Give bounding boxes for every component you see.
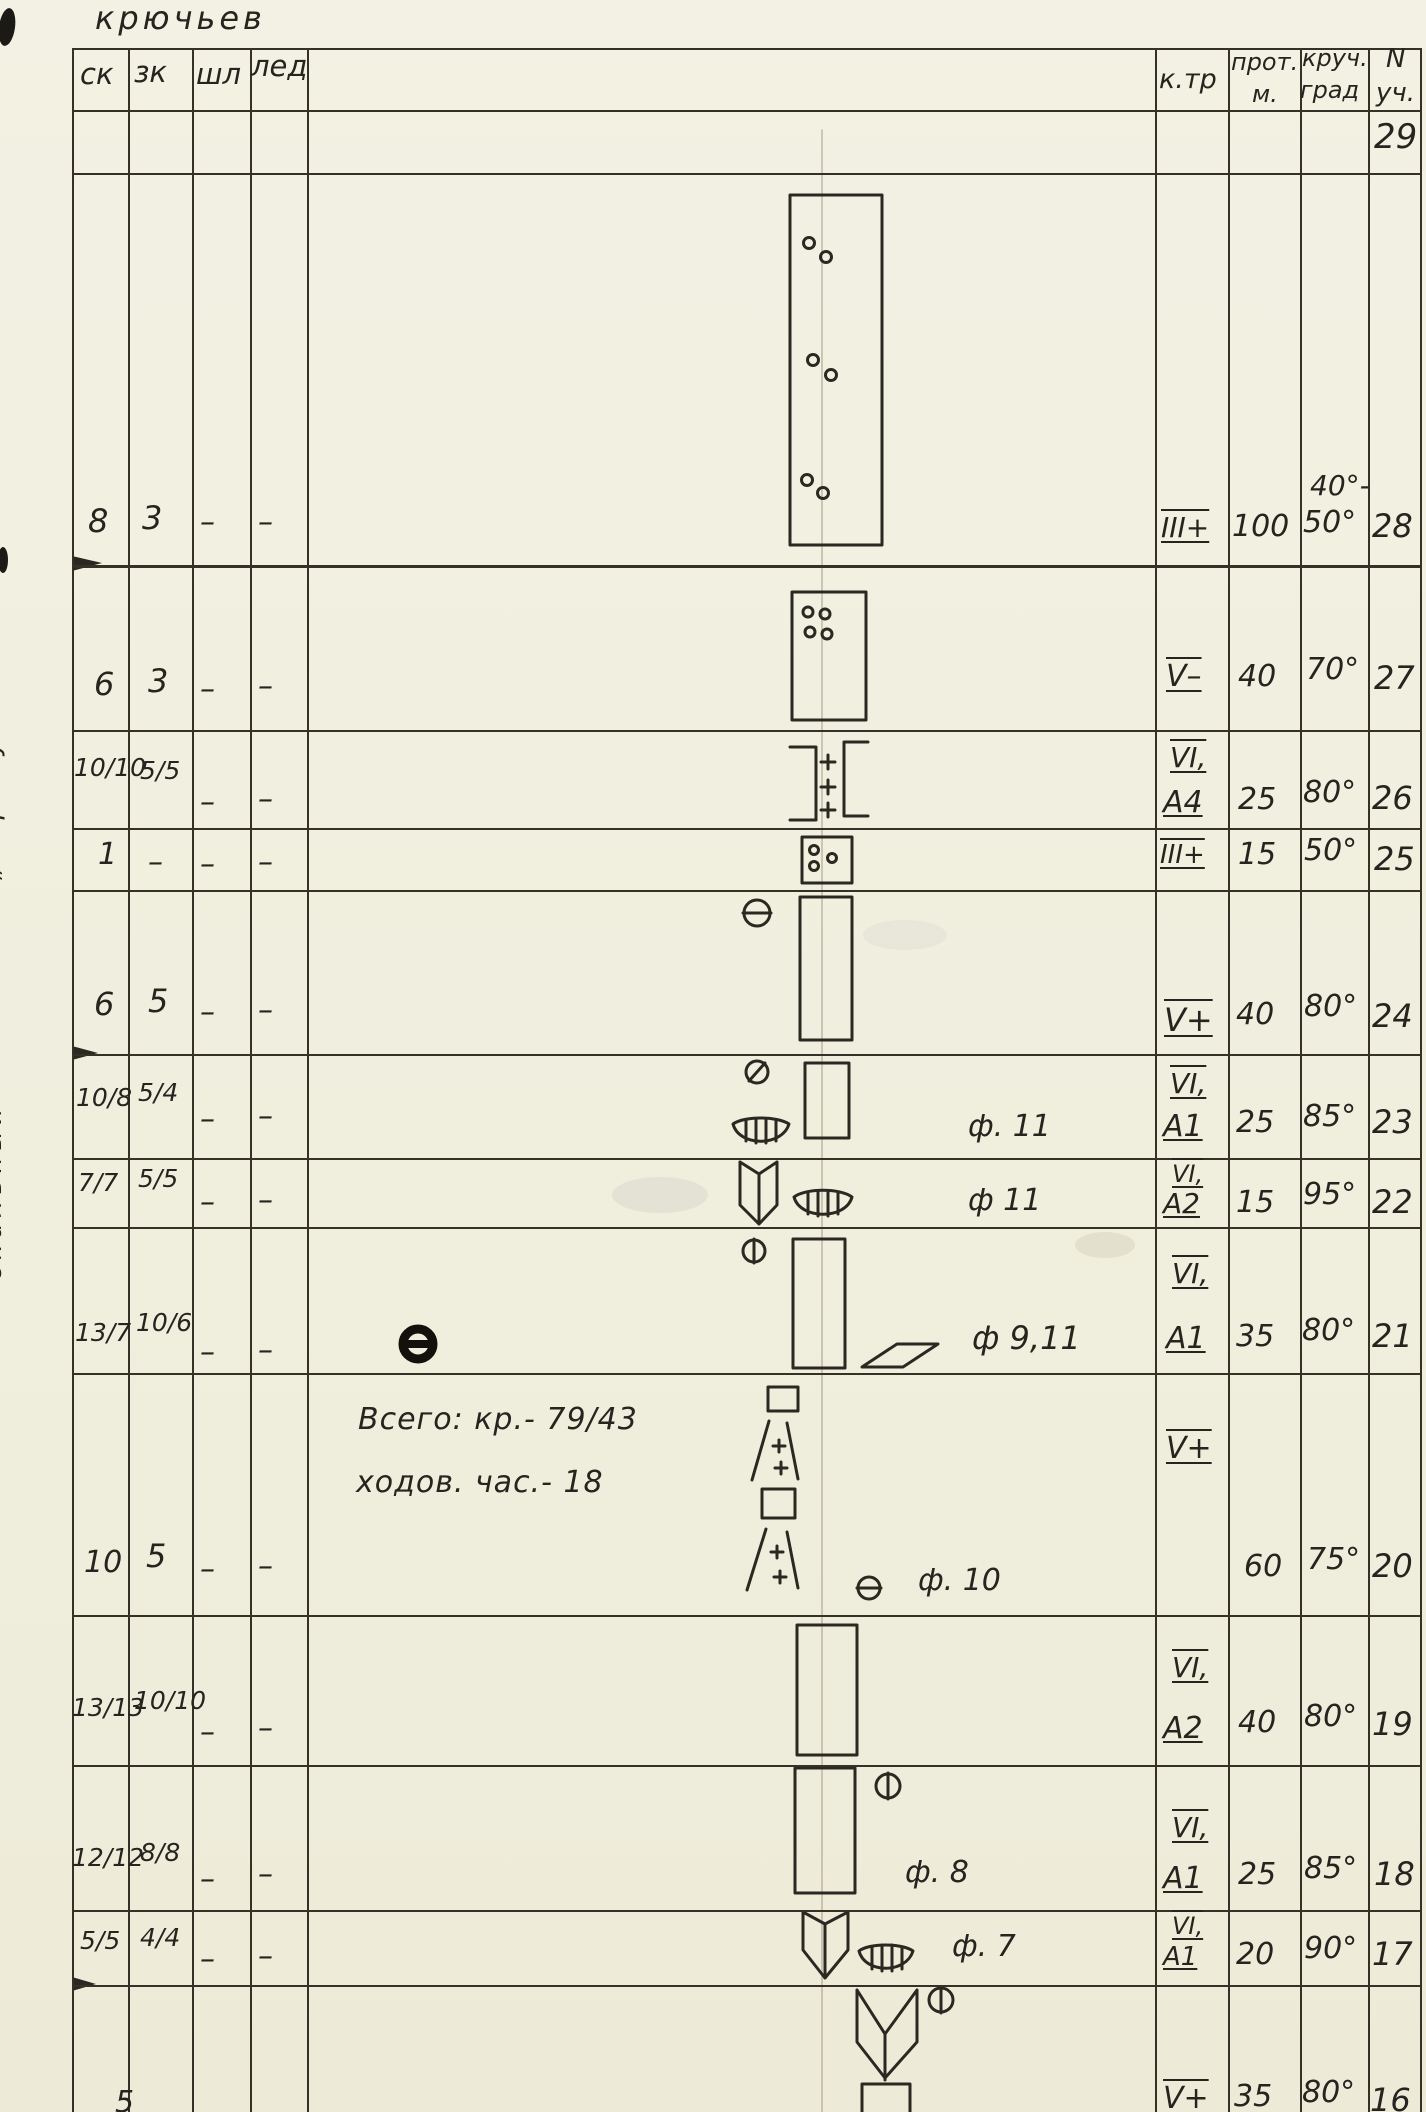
r28-length: 100 (1232, 512, 1289, 542)
route-topo-scan: крючьев ск зк шл лед к.тр прот. м. круч.… (0, 0, 1426, 2112)
drawing-r16-dihedral-icon (857, 1990, 917, 2112)
r18-photo-ref: ф. 8 (905, 1858, 969, 1888)
r27-led: – (258, 672, 273, 702)
grid-line-v (128, 48, 130, 2112)
r16-steepness: 80° (1302, 2078, 1355, 2108)
r20-steepness: 75° (1307, 1545, 1360, 1575)
drawing-r24-belay-circle-icon (743, 900, 771, 926)
col-header-prot-bot: м. (1252, 82, 1278, 106)
grid-line-h (72, 1910, 1420, 1912)
grid-line-h (72, 565, 1420, 568)
r23-aid-grade: А1 (1163, 1112, 1203, 1142)
r21-length: 35 (1236, 1322, 1274, 1352)
drawing-r22-overhang-icon (794, 1190, 852, 1216)
r21-n: 21 (1372, 1320, 1413, 1352)
drawing-r20-crack-pitons-icon (747, 1387, 798, 1590)
r21-grade: VI, (1172, 1260, 1208, 1288)
r19-n: 19 (1372, 1708, 1413, 1740)
col-header-n-top: N (1386, 46, 1405, 72)
col-header-prot-top: прот. (1231, 50, 1298, 74)
r17-zk: 4/4 (140, 1925, 180, 1950)
r20-length: 60 (1244, 1552, 1282, 1582)
drawing-r22-dihedral-icon (740, 1162, 777, 1224)
r20-sk: 10 (84, 1548, 122, 1578)
grid-line-v (307, 48, 309, 2112)
grid-line-v (1228, 48, 1230, 2112)
r25-sk: 1 (98, 840, 117, 870)
r26-zk: 5/5 (140, 758, 180, 783)
r27-grade: V– (1166, 662, 1202, 692)
r18-aid-grade: А1 (1163, 1864, 1203, 1894)
r21-sk: 13/7 (75, 1320, 131, 1345)
r21-led: – (258, 1336, 273, 1366)
drawing-r21-ledge-icon (862, 1344, 938, 1367)
r16-n: 16 (1370, 2084, 1411, 2112)
r19-length: 40 (1238, 1708, 1276, 1738)
r23-zk: 5/4 (138, 1080, 178, 1105)
r17-shl: – (200, 1945, 215, 1975)
drawing-r25-block-icon (802, 837, 852, 883)
r26-aid-grade: А4 (1163, 788, 1203, 818)
r26-grade: VI, (1170, 744, 1206, 772)
r25-led: – (258, 848, 273, 878)
r28-n: 28 (1372, 510, 1413, 542)
grid-line-h (72, 1227, 1420, 1229)
drawing-r18-circle-bar-icon (876, 1773, 900, 1799)
grid-line-v (72, 48, 74, 2112)
r23-n: 23 (1372, 1106, 1413, 1138)
r16-sk: 5 (115, 2088, 134, 2112)
r24-grade: V+ (1164, 1004, 1213, 1036)
r22-n: 22 (1372, 1186, 1413, 1218)
corner-note: крючьев (95, 2, 266, 34)
drawing-r24-wall-icon (800, 897, 852, 1040)
col-header-krut-top: круч. (1302, 46, 1368, 70)
r18-grade: VI, (1172, 1814, 1208, 1842)
r25-length: 15 (1238, 840, 1276, 870)
drawing-r23-overhang-icon (733, 1118, 789, 1143)
grid-line-h (72, 1615, 1420, 1617)
r17-grade: VI, (1172, 1914, 1203, 1938)
r23-steepness: 85° (1303, 1102, 1356, 1132)
col-header-krut-bot: град (1300, 78, 1359, 102)
drawing-r18-wall-icon (795, 1768, 855, 1893)
r21-steepness: 80° (1302, 1316, 1355, 1346)
r24-shl: – (200, 998, 215, 1028)
r20-n: 20 (1372, 1550, 1413, 1582)
margin-label-skalny-2: скальный (0, 1747, 4, 1917)
margin-label-skalny-1: скальный (0, 1102, 8, 1280)
r19-led: – (258, 1714, 273, 1744)
r26-steepness: 80° (1303, 778, 1356, 808)
drawing-r27-wall-icon (792, 592, 866, 720)
grid-line-h (72, 1765, 1420, 1767)
r17-aid-grade: А1 (1163, 1944, 1197, 1970)
r24-n: 24 (1372, 1000, 1413, 1032)
r23-length: 25 (1236, 1108, 1274, 1138)
margin-label-poyas: пояс (0, 1493, 4, 1575)
r19-steepness: 80° (1304, 1702, 1357, 1732)
drawing-r21-wall-icon (793, 1239, 845, 1368)
drawing-r19-wall-icon (797, 1625, 857, 1755)
grid-line-v (1155, 48, 1157, 2112)
r18-steepness: 85° (1304, 1854, 1357, 1884)
drawing-r21-circle-bar-icon (743, 1239, 765, 1263)
drawing-r16-circle-bar-icon (929, 1987, 953, 2013)
r22-length: 15 (1236, 1188, 1274, 1218)
drawing-r23-circle-slash-icon (746, 1061, 768, 1083)
r28-grade: III+ (1161, 514, 1209, 542)
drawing-r26-chimney-pitons-icon (790, 742, 868, 820)
r21-aid-grade: А1 (1166, 1324, 1206, 1354)
grid-line-h (72, 1054, 1420, 1056)
r29-n: 29 (1374, 120, 1417, 154)
totals-hooks: Всего: кр.- 79/43 (358, 1405, 638, 1435)
col-header-ktr: к.тр (1159, 66, 1217, 93)
r22-led: – (258, 1186, 273, 1216)
margin-label-triangle: „Треугольник“ (0, 475, 6, 880)
r28-steepness-a: 40°- (1310, 472, 1370, 500)
r16-grade: V+ (1163, 2084, 1209, 2112)
grid-line-v (192, 48, 194, 2112)
drawing-r17-dihedral-icon (803, 1912, 848, 1978)
r26-sk: 10/10 (74, 755, 146, 780)
r20-led: – (258, 1552, 273, 1582)
grid-line-h (72, 1158, 1420, 1160)
col-header-n-bot: уч. (1376, 80, 1415, 106)
r24-led: – (258, 996, 273, 1026)
r28-led: – (258, 508, 273, 538)
r27-sk: 6 (94, 668, 114, 700)
r17-sk: 5/5 (80, 1928, 120, 1953)
grid-line-h (72, 173, 1420, 175)
r28-sk: 8 (88, 505, 108, 537)
r23-shl: – (200, 1105, 215, 1135)
r22-steepness: 95° (1303, 1180, 1356, 1210)
r20-shl: – (200, 1555, 215, 1585)
r24-zk: 5 (148, 985, 168, 1017)
r25-steepness: 50° (1304, 836, 1357, 866)
r26-led: – (258, 785, 273, 815)
r27-n: 27 (1374, 662, 1415, 694)
r18-length: 25 (1238, 1860, 1276, 1890)
r18-led: – (258, 1860, 273, 1890)
r25-n: 25 (1374, 843, 1415, 875)
r18-n: 18 (1374, 1858, 1415, 1890)
r17-n: 17 (1372, 1938, 1413, 1970)
r26-shl: – (200, 788, 215, 818)
r22-aid-grade: А2 (1163, 1190, 1200, 1218)
r24-sk: 6 (94, 988, 114, 1020)
col-header-led: лед (251, 52, 307, 81)
r21-photo-ref: ф 9,11 (972, 1322, 1081, 1354)
r18-sk: 12/12 (72, 1845, 144, 1870)
r22-zk: 5/5 (138, 1166, 178, 1191)
r17-steepness: 90° (1304, 1934, 1357, 1964)
r24-length: 40 (1236, 1000, 1274, 1030)
r20-grade: V+ (1166, 1434, 1212, 1464)
grid-line-v (1300, 48, 1302, 2112)
r26-length: 25 (1238, 785, 1276, 815)
drawing-r28-wall-icon (790, 195, 882, 545)
r28-zk: 3 (142, 502, 162, 534)
r20-photo-ref: ф. 10 (918, 1566, 1001, 1596)
r24-steepness: 80° (1304, 992, 1357, 1022)
drawing-r23-wall-icon (805, 1063, 849, 1138)
grid-line-v (1420, 48, 1422, 2112)
r18-shl: – (200, 1865, 215, 1895)
route-drawings-layer (0, 0, 1426, 2112)
margin-label-vtoroy: Второй (0, 1975, 2, 2090)
grid-line-h (72, 890, 1420, 892)
r19-aid-grade: А2 (1163, 1714, 1203, 1744)
drawing-r20-belay-circle-icon (857, 1577, 881, 1599)
r21-zk: 10/6 (136, 1310, 192, 1335)
col-header-shl: шл (196, 60, 241, 89)
grid-line-v (250, 48, 252, 2112)
grid-line-v (1368, 48, 1370, 2112)
grid-line-h (72, 828, 1420, 830)
r27-shl: – (200, 675, 215, 705)
grid-line-h (72, 1985, 1420, 1987)
r28-shl: – (200, 508, 215, 538)
r22-grade: VI, (1172, 1162, 1203, 1186)
col-header-zk: зк (134, 58, 167, 87)
r19-shl: – (200, 1718, 215, 1748)
r17-photo-ref: ф. 7 (952, 1932, 1016, 1962)
scan-artifacts (0, 7, 1135, 1258)
r23-led: – (258, 1102, 273, 1132)
r27-length: 40 (1238, 662, 1276, 692)
r25-grade: III+ (1160, 842, 1205, 868)
r17-length: 20 (1236, 1940, 1274, 1970)
r27-steepness: 70° (1306, 655, 1359, 685)
drawing-r17-overhang-icon (859, 1945, 913, 1971)
r19-zk: 10/10 (134, 1688, 206, 1713)
r22-photo-ref: ф 11 (968, 1186, 1041, 1216)
r16-length: 35 (1234, 2082, 1272, 2112)
r23-photo-ref: ф. 11 (968, 1112, 1051, 1142)
r26-n: 26 (1372, 782, 1413, 814)
r25-zk: – (148, 848, 163, 878)
r19-grade: VI, (1172, 1654, 1208, 1682)
r20-zk: 5 (146, 1540, 166, 1572)
r17-led: – (258, 1942, 273, 1972)
r25-shl: – (200, 850, 215, 880)
drawing-r21-bold-belay-icon (403, 1329, 433, 1359)
r22-shl: – (200, 1188, 215, 1218)
r22-sk: 7/7 (78, 1170, 118, 1195)
r27-zk: 3 (148, 665, 168, 697)
grid-line-h (72, 110, 1420, 112)
r28-steepness-b: 50° (1303, 508, 1356, 538)
col-header-sk: ск (80, 60, 113, 89)
grid-line-h (72, 730, 1420, 732)
r23-sk: 10/8 (76, 1085, 132, 1110)
r21-shl: – (200, 1338, 215, 1368)
totals-hours: ходов. час.- 18 (356, 1468, 604, 1498)
grid-line-h (72, 1373, 1420, 1375)
r23-grade: VI, (1170, 1070, 1206, 1098)
r18-zk: 8/8 (140, 1840, 180, 1865)
